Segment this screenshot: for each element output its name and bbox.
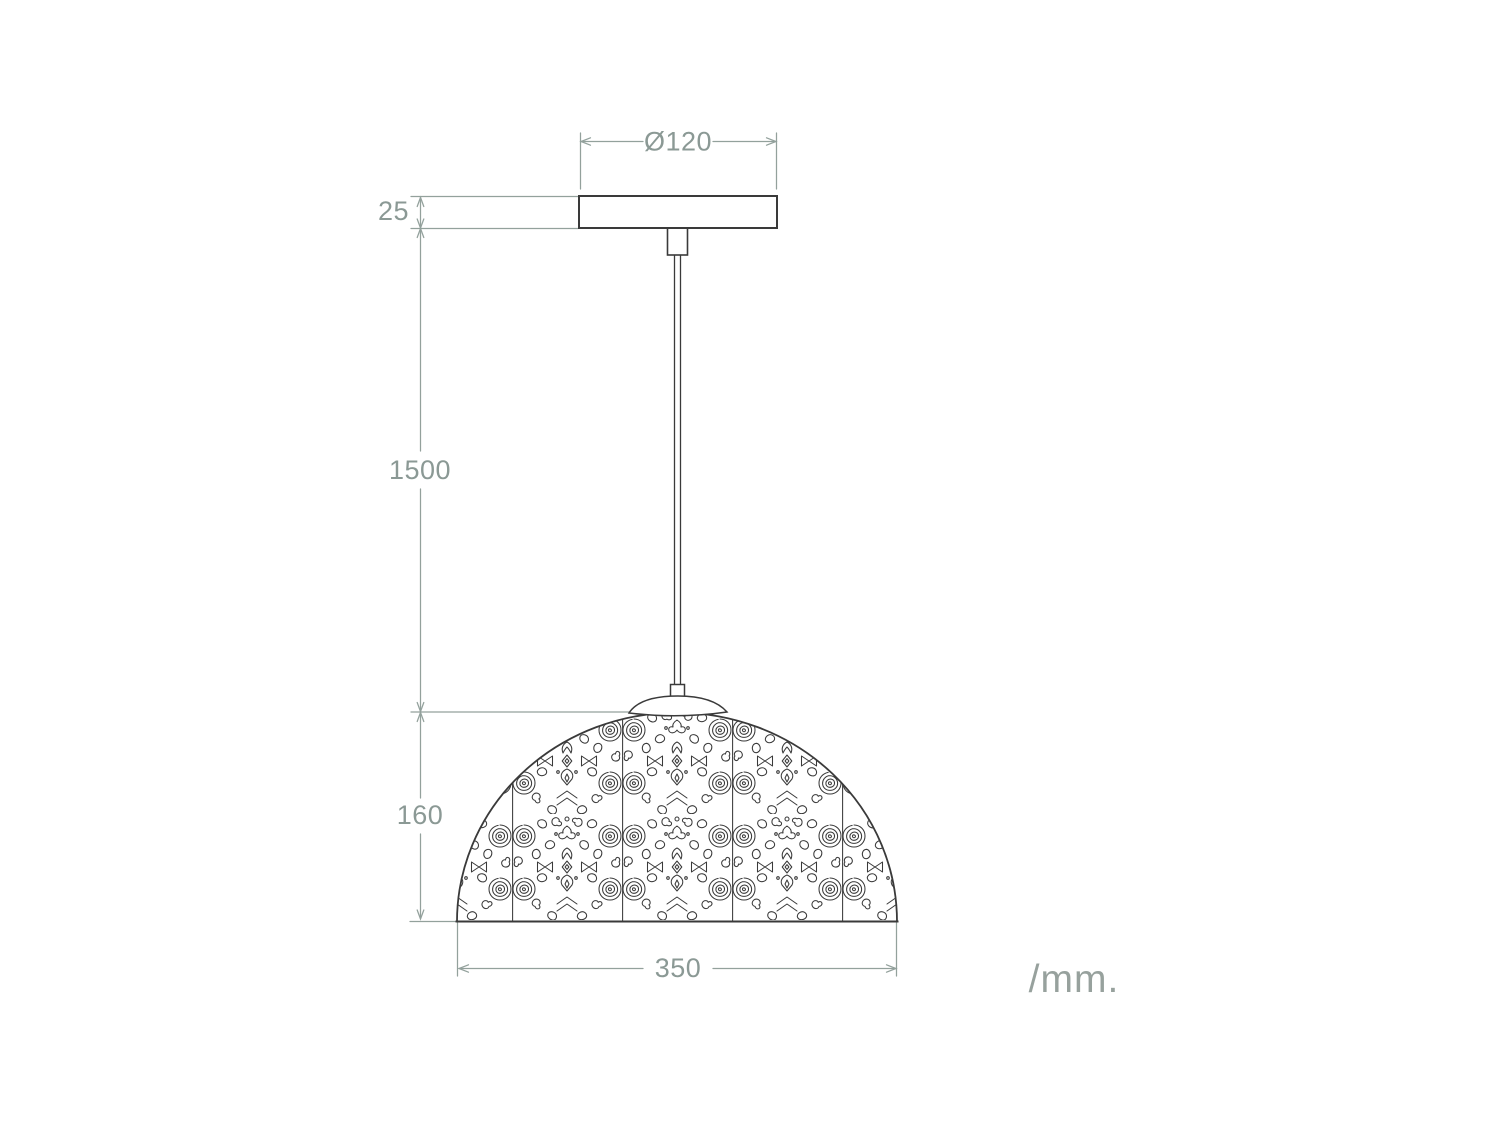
cable-length-label: 1500: [389, 455, 451, 485]
lamp-drawing: [456, 196, 899, 923]
strain-relief: [668, 228, 688, 255]
drawing-canvas: Ø120 25 1500 160 350 /mm.: [0, 0, 1500, 1125]
shade-height-label: 160: [397, 800, 444, 830]
canopy-diameter-label: Ø120: [644, 127, 712, 157]
suspension-cable: [675, 255, 681, 690]
dome-shade: [456, 711, 899, 923]
ceiling-canopy: [579, 196, 777, 228]
dome-top-cap: [629, 696, 727, 716]
units-label: /mm.: [1029, 958, 1120, 1001]
dim-canopy-height: [411, 197, 578, 229]
pendant-lamp-dimension-drawing: Ø120 25 1500 160 350 /mm.: [0, 0, 1500, 1125]
shade-diameter-label: 350: [655, 953, 702, 983]
canopy-height-label: 25: [378, 196, 409, 226]
dome-damask-pattern: [457, 711, 897, 923]
